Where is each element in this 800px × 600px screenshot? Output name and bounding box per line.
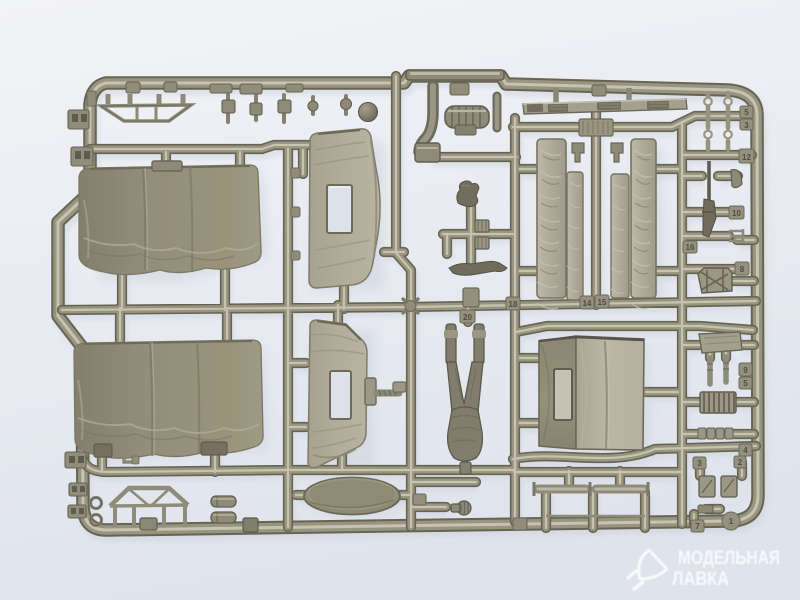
svg-text:3: 3 — [744, 121, 749, 130]
svg-text:ЛАВКА: ЛАВКА — [672, 568, 729, 590]
svg-text:7: 7 — [695, 522, 700, 531]
svg-text:5: 5 — [743, 379, 748, 388]
svg-text:МОДЕЛЬНАЯ: МОДЕЛЬНАЯ — [678, 547, 780, 569]
svg-text:18: 18 — [509, 300, 518, 309]
svg-text:20: 20 — [463, 313, 472, 322]
svg-text:3: 3 — [697, 459, 702, 468]
svg-text:1: 1 — [729, 517, 734, 526]
svg-text:16: 16 — [686, 243, 695, 252]
svg-text:12: 12 — [742, 153, 751, 162]
svg-text:2: 2 — [738, 458, 743, 467]
svg-text:4: 4 — [743, 446, 748, 455]
svg-text:14: 14 — [583, 299, 592, 308]
svg-text:8: 8 — [740, 265, 745, 274]
svg-text:5: 5 — [744, 108, 749, 117]
svg-text:9: 9 — [743, 366, 748, 375]
svg-text:10: 10 — [732, 209, 741, 218]
svg-text:15: 15 — [598, 298, 607, 307]
